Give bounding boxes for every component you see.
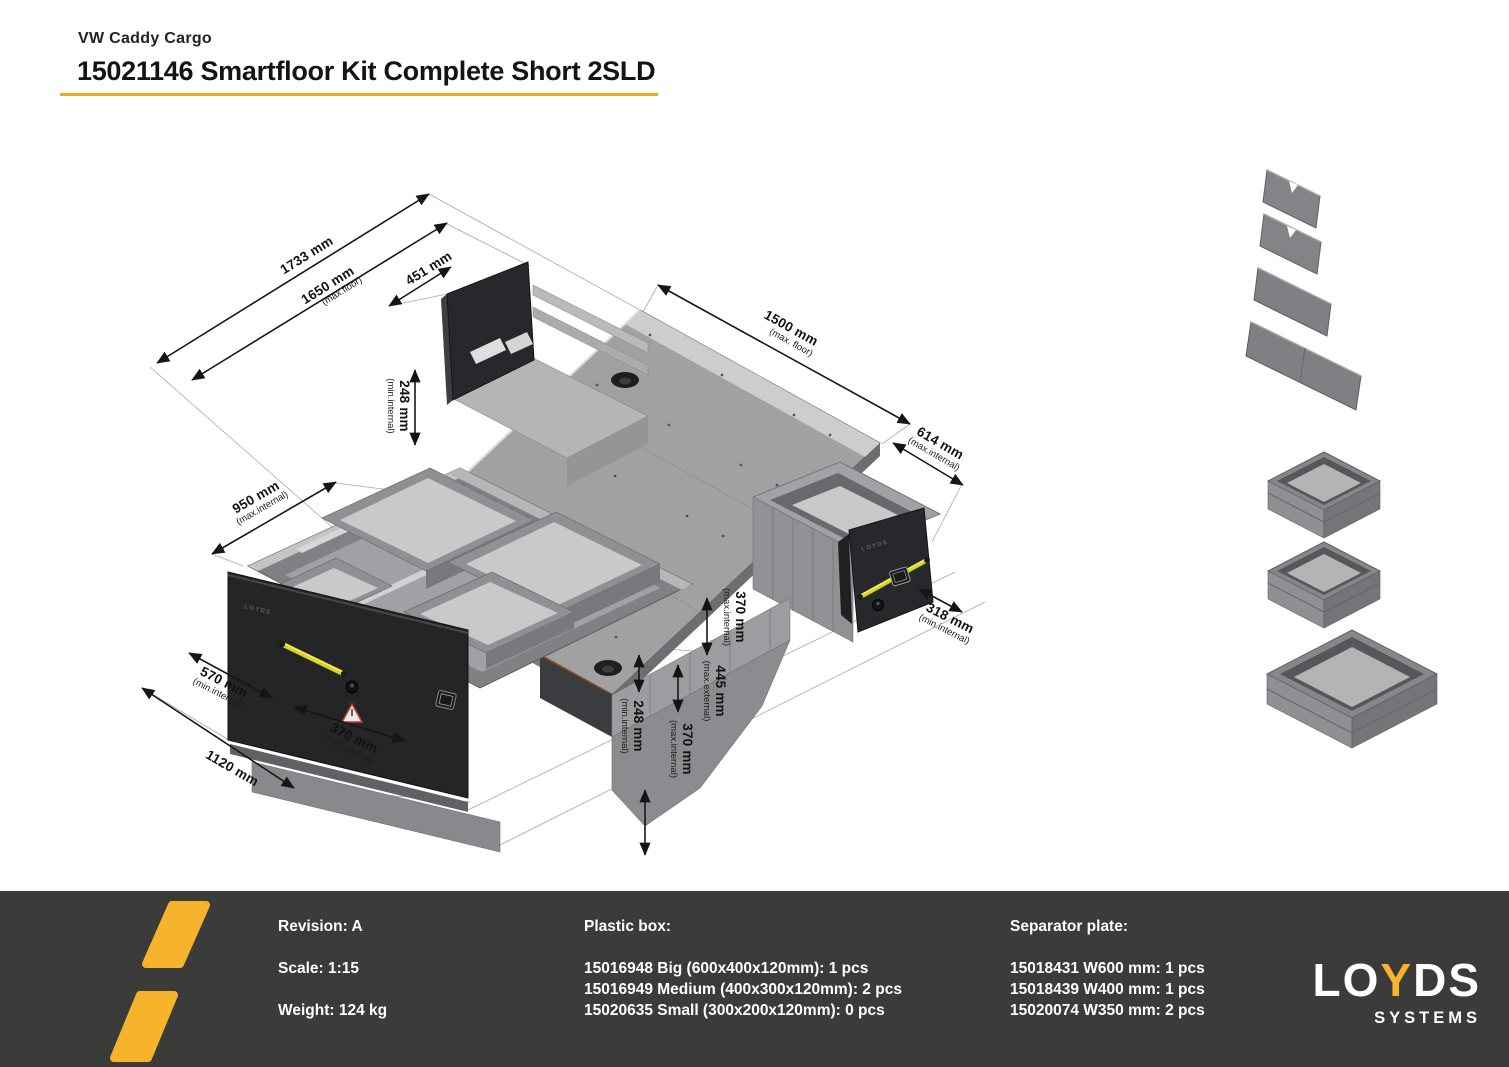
dimension-950mm: 950 mm (max.internal) [227, 476, 290, 528]
smartfloor-model: LOYDS [228, 262, 940, 852]
scale-value: Scale: 1:15 [278, 960, 359, 978]
dimension-248mm-centre: 248 mm (min.internal) [619, 698, 646, 753]
dimension-451mm: 451 mm [403, 248, 455, 288]
plastic-box-item: 15016948 Big (600x400x120mm): 1 pcs [584, 960, 868, 978]
logo-y: Y [1380, 954, 1413, 1006]
svg-text:(max.external): (max.external) [701, 661, 712, 722]
svg-text:(min.internal): (min.internal) [385, 378, 396, 433]
title-accent-rule [60, 93, 658, 96]
plastic-box-big [1267, 630, 1437, 748]
plastic-box-item: 15020635 Small (300x200x120mm): 0 pcs [584, 1002, 885, 1020]
logo-ds: DS [1413, 954, 1481, 1006]
dimension-248mm-rear: 248 mm (min.internal) [385, 378, 412, 433]
plastic-boxes [1267, 452, 1437, 748]
separator-plate-item: 15018431 W600 mm: 1 pcs [1010, 960, 1205, 978]
plastic-box-heading: Plastic box: [584, 918, 671, 936]
loyds-logo: LOYDS SYSTEMS [1313, 957, 1481, 1027]
separator-plates [1246, 170, 1361, 410]
page-title: 15021146 Smartfloor Kit Complete Short 2… [77, 56, 655, 87]
dimension-614mm: 614 mm (max.internal) [906, 422, 969, 474]
svg-text:(max.internal): (max.internal) [668, 720, 679, 778]
logo-systems: SYSTEMS [1313, 1010, 1481, 1027]
loyds-slash-mark [0, 891, 240, 1067]
revision-value: Revision: A [278, 918, 363, 936]
svg-text:370 mm: 370 mm [733, 591, 748, 642]
front-drawer-badge [435, 690, 456, 710]
dimension-1500mm: 1500 mm (max. floor) [756, 307, 822, 359]
svg-text:370 mm: 370 mm [680, 723, 695, 774]
technical-drawing: LOYDS [0, 105, 1509, 891]
separator-plate-item: 15018439 W400 mm: 1 pcs [1010, 981, 1205, 999]
svg-text:451 mm: 451 mm [403, 248, 455, 288]
footer-bar: Revision: A Scale: 1:15 Weight: 124 kg P… [0, 891, 1509, 1067]
svg-text:(min.internal): (min.internal) [619, 698, 630, 753]
dimension-370mm-top: 370 mm (max.internal) [721, 588, 748, 646]
svg-text:248 mm: 248 mm [397, 380, 412, 431]
vehicle-label: VW Caddy Cargo [78, 30, 212, 48]
dimension-370mm-bottom: 370 mm (max.internal) [668, 720, 695, 778]
dimension-445mm: 445 mm (max.external) [701, 661, 728, 722]
logo-lo: LO [1313, 954, 1381, 1006]
svg-text:445 mm: 445 mm [713, 665, 728, 716]
datasheet-page: VW Caddy Cargo 15021146 Smartfloor Kit C… [0, 0, 1509, 1067]
svg-text:(max.internal): (max.internal) [721, 588, 732, 646]
separator-plate-w600 [1246, 322, 1361, 410]
separator-plate-heading: Separator plate: [1010, 918, 1128, 936]
weight-value: Weight: 124 kg [278, 1002, 387, 1020]
separator-plate-item: 15020074 W350 mm: 2 pcs [1010, 1002, 1205, 1020]
separator-plate-w400 [1254, 268, 1331, 336]
dimension-318mm: 318 mm (min.internal) [917, 599, 978, 647]
svg-text:248 mm: 248 mm [631, 700, 646, 751]
plastic-box-item: 15016949 Medium (400x300x120mm): 2 pcs [584, 981, 902, 999]
